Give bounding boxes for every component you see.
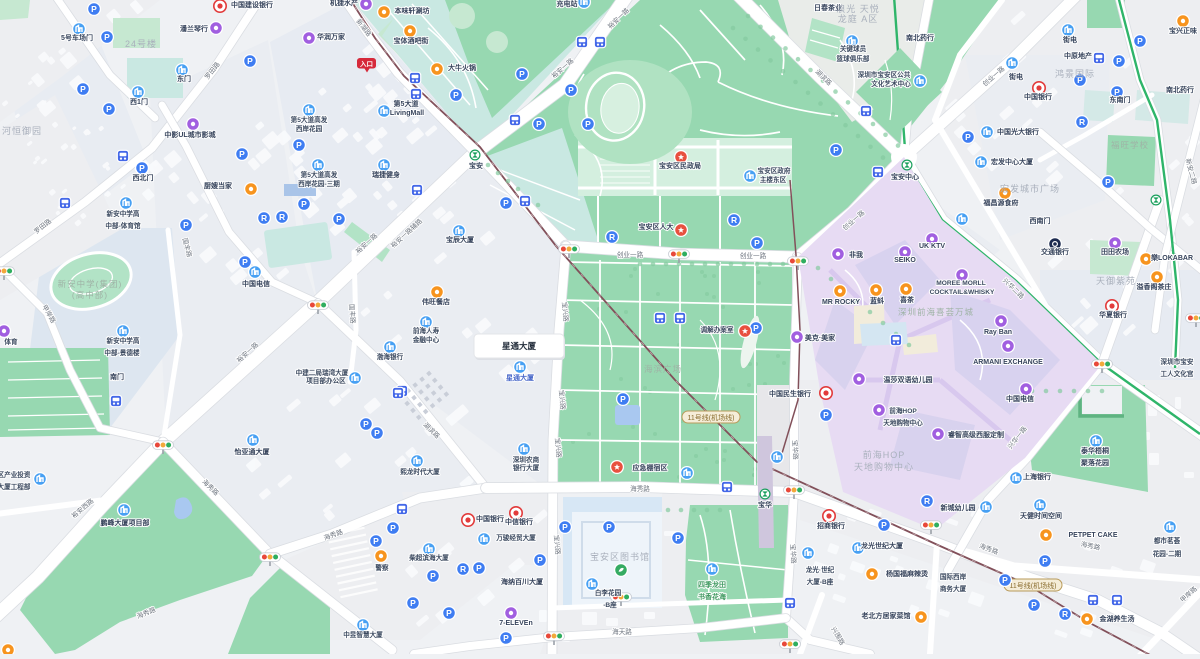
svg-text:龙光世纪大厦: 龙光世纪大厦 — [860, 541, 904, 550]
svg-text:天地购物中心: 天地购物中心 — [854, 461, 914, 472]
svg-text:金融中心: 金融中心 — [412, 335, 440, 344]
svg-text:中国民生银行: 中国民生银行 — [769, 389, 811, 398]
svg-text:宝安: 宝安 — [469, 161, 483, 170]
svg-text:都市茗荟: 都市茗荟 — [1153, 536, 1181, 545]
svg-text:机捷水产: 机捷水产 — [330, 0, 358, 7]
svg-text:新安中学高: 新安中学高 — [107, 209, 140, 218]
svg-text:田田农场: 田田农场 — [1101, 247, 1129, 256]
svg-text:充电站: 充电站 — [557, 0, 578, 8]
svg-text:篮球俱乐部: 篮球俱乐部 — [836, 54, 870, 63]
svg-text:鹏峰大厦项目部: 鹏峰大厦项目部 — [101, 518, 150, 527]
svg-text:熙龙时代大厦: 熙龙时代大厦 — [400, 467, 440, 476]
svg-text:西岸花园: 西岸花园 — [296, 124, 323, 133]
svg-text:东门: 东门 — [177, 74, 191, 83]
svg-text:第5大道高发: 第5大道高发 — [291, 115, 328, 124]
svg-text:怡亚通大厦: 怡亚通大厦 — [235, 447, 271, 456]
svg-text:宏发城市广场: 宏发城市广场 — [1000, 183, 1060, 194]
svg-text:宝辰大厦: 宝辰大厦 — [446, 235, 475, 244]
svg-text:龙庭 A区: 龙庭 A区 — [838, 13, 879, 24]
svg-text:第5大道: 第5大道 — [394, 99, 419, 108]
svg-text:龙光·世纪: 龙光·世纪 — [806, 565, 835, 574]
svg-text:宝安区民政局: 宝安区民政局 — [659, 161, 701, 170]
svg-text:星通大厦: 星通大厦 — [502, 341, 537, 351]
svg-text:大厦-B座: 大厦-B座 — [807, 577, 834, 586]
svg-text:前海人寿: 前海人寿 — [413, 326, 440, 335]
svg-text:LivingMall: LivingMall — [390, 110, 424, 117]
svg-text:浪光 天悦: 浪光 天悦 — [836, 3, 880, 14]
svg-text:大厦工程部: 大厦工程部 — [0, 482, 31, 491]
svg-text:中国银行: 中国银行 — [476, 514, 504, 523]
svg-text:宝体酒吧街: 宝体酒吧街 — [394, 36, 429, 45]
svg-text:深圳市宝安区公共: 深圳市宝安区公共 — [858, 70, 911, 79]
svg-text:白李花园: 白李花园 — [595, 588, 622, 597]
svg-text:商务大厦: 商务大厦 — [940, 584, 967, 593]
svg-text:大牛火锅: 大牛火锅 — [448, 63, 476, 72]
svg-text:深圳前海喜荟万城: 深圳前海喜荟万城 — [898, 307, 974, 317]
svg-text:海纳百川大厦: 海纳百川大厦 — [501, 577, 544, 586]
svg-text:天健时间空间: 天健时间空间 — [1020, 511, 1062, 520]
svg-text:11号线(机场线): 11号线(机场线) — [1010, 581, 1057, 590]
svg-text:睿智高级西服定制: 睿智高级西服定制 — [948, 430, 1004, 439]
svg-text:中国银行: 中国银行 — [1024, 92, 1052, 101]
svg-text:中部-景德楼: 中部-景德楼 — [104, 348, 140, 357]
svg-text:西北门: 西北门 — [133, 173, 154, 182]
svg-text:书香花海: 书香花海 — [698, 592, 726, 601]
svg-text:四季龙田: 四季龙田 — [698, 580, 726, 589]
svg-text:招商银行: 招商银行 — [817, 521, 845, 530]
svg-text:西岸花园-三期: 西岸花园-三期 — [298, 179, 340, 188]
svg-text:24号楼: 24号楼 — [125, 38, 157, 49]
svg-text:-B座: -B座 — [603, 600, 617, 609]
svg-text:伟旺餐店: 伟旺餐店 — [422, 297, 450, 306]
svg-text:中国建设银行: 中国建设银行 — [231, 0, 273, 9]
svg-text:创业一路: 创业一路 — [740, 251, 767, 260]
svg-text:上海银行: 上海银行 — [1023, 472, 1051, 481]
svg-text:UK KTV: UK KTV — [919, 243, 945, 250]
svg-text:前海HOP: 前海HOP — [889, 406, 917, 415]
svg-text:华润万家: 华润万家 — [317, 32, 346, 41]
svg-text:潘兰琴行: 潘兰琴行 — [180, 24, 208, 33]
svg-text:宝安中心: 宝安中心 — [891, 172, 919, 181]
svg-text:中国电信: 中国电信 — [242, 279, 270, 288]
svg-text:交通银行: 交通银行 — [1041, 247, 1069, 256]
svg-text:警察: 警察 — [375, 563, 389, 572]
svg-text:喜茶: 喜茶 — [900, 295, 915, 304]
svg-text:中国光大银行: 中国光大银行 — [997, 127, 1039, 136]
svg-text:工人文化宫: 工人文化宫 — [1161, 369, 1194, 378]
svg-text:宏发中心大厦: 宏发中心大厦 — [991, 157, 1034, 166]
svg-text:东南门: 东南门 — [1110, 95, 1131, 104]
svg-text:瑞捷健身: 瑞捷健身 — [372, 170, 400, 179]
svg-text:中昱智慧大厦: 中昱智慧大厦 — [343, 630, 383, 639]
svg-text:泰华梧桐: 泰华梧桐 — [1080, 446, 1109, 455]
svg-text:(高中部): (高中部) — [72, 290, 108, 300]
svg-text:杨国福麻辣烫: 杨国福麻辣烫 — [886, 569, 929, 578]
svg-text:西1门: 西1门 — [130, 97, 148, 106]
svg-text:深圳农商: 深圳农商 — [513, 455, 540, 464]
svg-text:宝兴正味: 宝兴正味 — [1169, 26, 1197, 35]
svg-text:中原地产: 中原地产 — [1064, 51, 1092, 60]
svg-text:前海HOP: 前海HOP — [863, 449, 906, 460]
svg-text:7-ELEVEn: 7-ELEVEn — [499, 620, 532, 627]
svg-text:河恒御园: 河恒御园 — [2, 125, 42, 136]
svg-text:区产业投资: 区产业投资 — [0, 470, 31, 479]
svg-text:老北方居家菜馆: 老北方居家菜馆 — [861, 611, 911, 620]
svg-text:新安中学高: 新安中学高 — [107, 336, 140, 345]
svg-text:溢香阁茶庄: 溢香阁茶庄 — [1137, 282, 1172, 291]
svg-text:国际西岸: 国际西岸 — [940, 572, 967, 581]
svg-text:鸿景国际: 鸿景国际 — [1055, 68, 1095, 79]
svg-text:项目部办公区: 项目部办公区 — [306, 376, 346, 385]
svg-text:非我: 非我 — [849, 250, 863, 259]
svg-text:宝安区政府: 宝安区政府 — [758, 166, 791, 175]
svg-text:体育: 体育 — [4, 337, 18, 346]
svg-text:中国电信: 中国电信 — [1006, 394, 1034, 403]
svg-text:华夏银行: 华夏银行 — [1099, 310, 1127, 319]
svg-text:ARMANI EXCHANGE: ARMANI EXCHANGE — [973, 359, 1043, 366]
svg-text:街电: 街电 — [1062, 35, 1077, 44]
svg-text:11号线(机场线): 11号线(机场线) — [688, 413, 735, 422]
svg-text:渤海银行: 渤海银行 — [377, 352, 404, 361]
svg-text:关键球员: 关键球员 — [840, 44, 867, 53]
svg-text:MOREE MORLL: MOREE MORLL — [936, 280, 985, 287]
svg-text:西南门: 西南门 — [1030, 216, 1051, 225]
svg-text:中影UL城市影城: 中影UL城市影城 — [164, 130, 215, 139]
svg-text:樂LOKABAR: 樂LOKABAR — [1151, 253, 1193, 262]
svg-text:银行大厦: 银行大厦 — [513, 463, 540, 472]
svg-text:天御紫苑: 天御紫苑 — [1096, 275, 1136, 286]
svg-text:星通大厦: 星通大厦 — [506, 373, 535, 382]
svg-text:美克·美家: 美克·美家 — [805, 333, 836, 342]
svg-text:新安中学(集团): 新安中学(集团) — [58, 279, 123, 289]
svg-text:应急棚宿区: 应急棚宿区 — [633, 463, 668, 472]
svg-text:宝安区图书馆: 宝安区图书馆 — [590, 551, 650, 562]
svg-text:深圳市宝安: 深圳市宝安 — [1161, 357, 1194, 366]
svg-text:海天路: 海天路 — [612, 627, 632, 636]
svg-text:文化艺术中心: 文化艺术中心 — [871, 79, 911, 88]
svg-text:主楼东区: 主楼东区 — [760, 175, 787, 184]
svg-text:福旺学校: 福旺学校 — [1111, 140, 1149, 150]
svg-text:入口: 入口 — [359, 60, 373, 68]
svg-text:蓝蚪: 蓝蚪 — [870, 296, 884, 305]
svg-text:5号车场门: 5号车场门 — [61, 33, 93, 42]
svg-text:海滨广场: 海滨广场 — [644, 364, 682, 374]
svg-text:南北药行: 南北药行 — [1166, 85, 1194, 94]
svg-text:温莎双语幼儿园: 温莎双语幼儿园 — [884, 375, 933, 384]
svg-text:宝华: 宝华 — [758, 500, 772, 509]
svg-text:新城幼儿园: 新城幼儿园 — [941, 503, 976, 512]
svg-text:中信银行: 中信银行 — [505, 517, 533, 526]
svg-text:厨嫂当家: 厨嫂当家 — [204, 181, 233, 190]
svg-text:南门: 南门 — [110, 372, 124, 381]
svg-text:花园-二期: 花园-二期 — [1153, 549, 1182, 558]
svg-text:COCKTAIL&WHISKY: COCKTAIL&WHISKY — [930, 289, 995, 296]
svg-text:海秀路: 海秀路 — [630, 484, 650, 493]
svg-text:福昌源食府: 福昌源食府 — [983, 198, 1019, 207]
svg-text:宝安区人大: 宝安区人大 — [639, 222, 674, 231]
svg-text:MR ROCKY: MR ROCKY — [822, 299, 860, 306]
svg-text:金湖养生汤: 金湖养生汤 — [1099, 614, 1135, 623]
svg-text:第5大道高发: 第5大道高发 — [301, 170, 338, 179]
svg-text:柴超滨海大厦: 柴超滨海大厦 — [408, 553, 449, 562]
svg-text:创业一路: 创业一路 — [617, 250, 644, 259]
svg-text:中部-体育馆: 中部-体育馆 — [105, 221, 141, 230]
svg-text:本味轩涮坊: 本味轩涮坊 — [394, 6, 430, 15]
svg-text:中建二局瑞湾大厦: 中建二局瑞湾大厦 — [296, 368, 349, 377]
svg-text:南北药行: 南北药行 — [906, 33, 934, 42]
svg-text:SEIKO: SEIKO — [894, 257, 916, 264]
svg-text:PETPET CAKE: PETPET CAKE — [1068, 532, 1117, 539]
svg-text:天地购物中心: 天地购物中心 — [883, 418, 923, 427]
svg-text:街电: 街电 — [1008, 72, 1023, 81]
svg-text:Ray Ban: Ray Ban — [984, 329, 1012, 336]
svg-text:调解办案室: 调解办案室 — [701, 325, 734, 334]
svg-text:聚落花园: 聚落花园 — [1080, 458, 1109, 467]
svg-text:万骏经贸大厦: 万骏经贸大厦 — [495, 533, 536, 542]
